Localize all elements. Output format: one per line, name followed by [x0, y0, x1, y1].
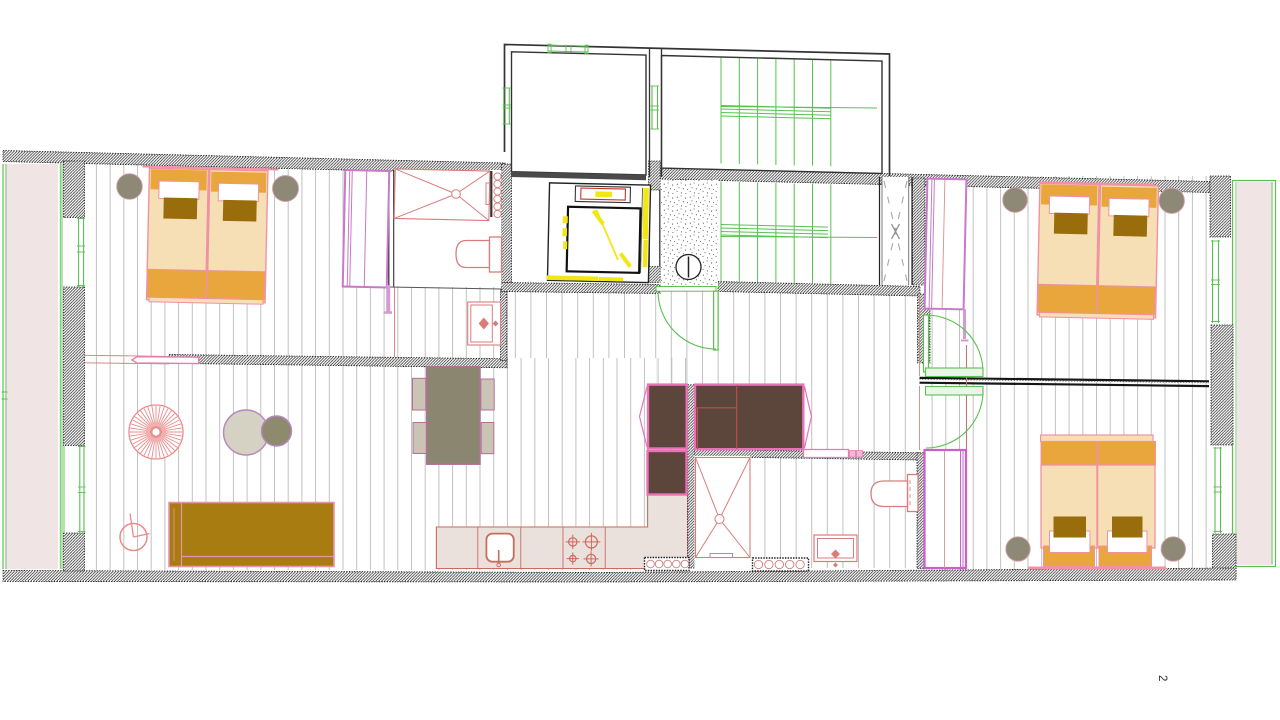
svg-text:2: 2: [1156, 675, 1168, 681]
